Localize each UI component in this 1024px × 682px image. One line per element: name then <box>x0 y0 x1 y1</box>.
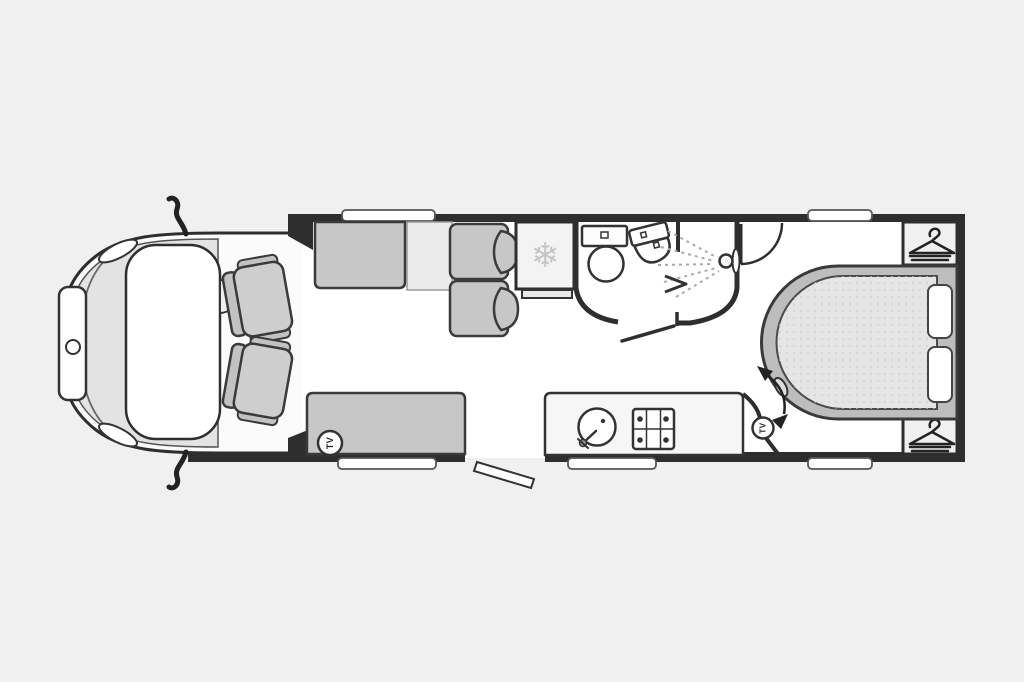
tv-badge-rear-label: TV <box>759 422 768 433</box>
window-lounge-bottom <box>338 458 436 469</box>
motorhome-floorplan: TV ❄ <box>0 0 1024 682</box>
window-bedroom-bottom <box>808 458 872 469</box>
front-sofa-top <box>315 222 405 288</box>
window-kitchen <box>568 458 656 469</box>
window-bedroom-top <box>808 210 872 221</box>
travel-seat-headrest <box>494 231 518 273</box>
fridge-shelf <box>522 290 572 298</box>
front-badge <box>66 340 80 354</box>
pillow <box>928 285 952 338</box>
pillow <box>928 347 952 402</box>
driver-seat-cushion <box>232 260 293 338</box>
passenger-seat-cushion <box>232 342 293 420</box>
tv-badge-front-label: TV <box>325 437 335 450</box>
shower-head <box>720 255 733 268</box>
mattress-texture <box>777 276 938 409</box>
side-cabinet <box>407 222 452 290</box>
floorplan-canvas: TV ❄ <box>0 0 1024 682</box>
snowflake-icon: ❄ <box>531 236 560 276</box>
travel-seat-headrest <box>494 288 518 330</box>
hob-icon <box>633 409 674 449</box>
window-front-lounge <box>342 210 435 221</box>
windscreen <box>126 245 220 439</box>
